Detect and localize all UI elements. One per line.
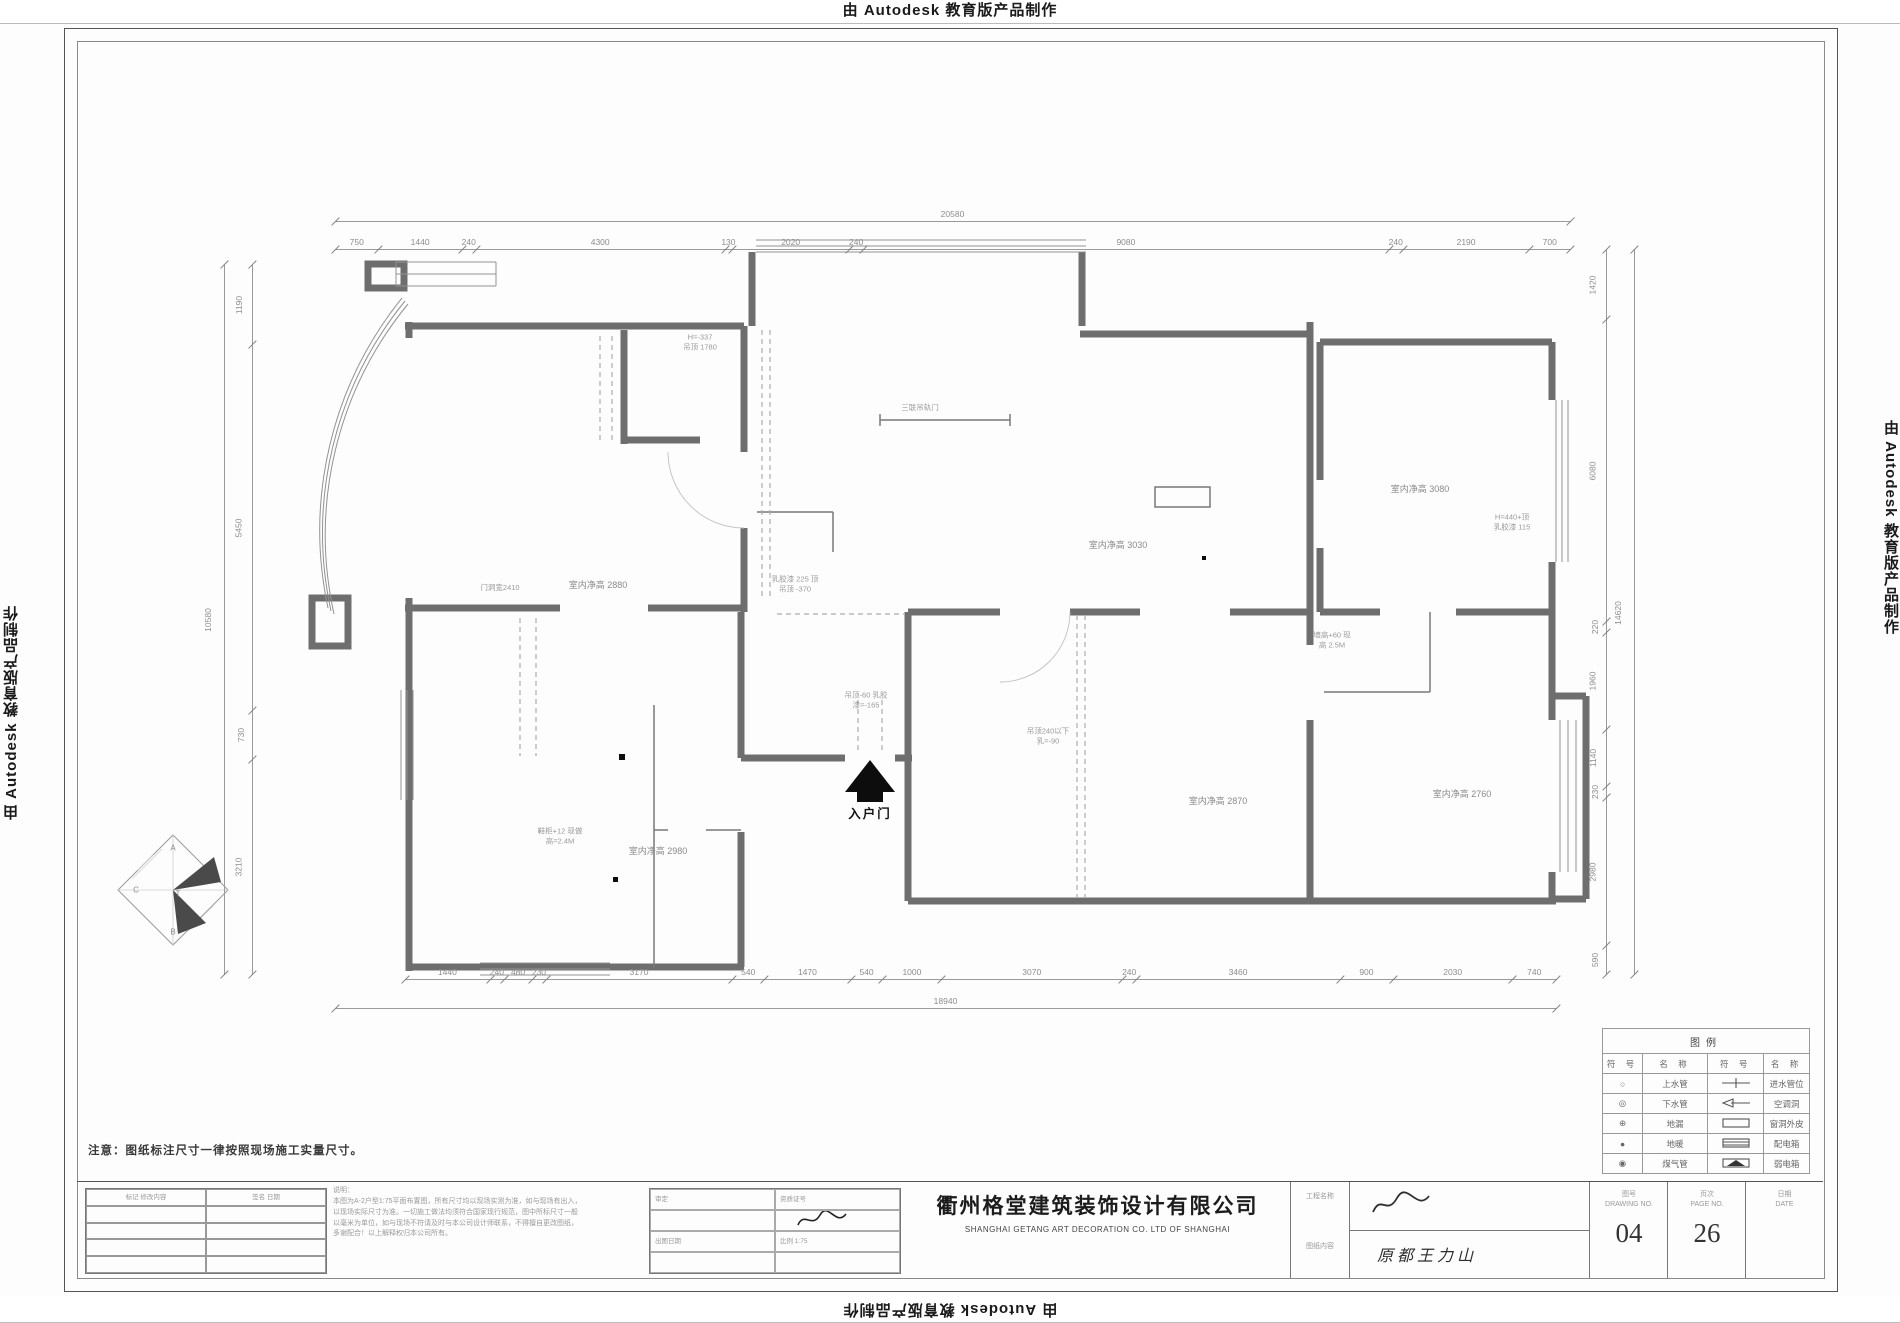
dwgno-value: 04	[1590, 1218, 1668, 1249]
room-label: 三联吊轨门	[901, 403, 939, 413]
notes-line: 以毫米为单位，如与现场不符请及时与本公司设计师联系，不得擅自更改图纸，	[333, 1219, 643, 1230]
divider-1	[1290, 1182, 1291, 1278]
revision-cell	[206, 1256, 326, 1273]
room-label-line: 吊顶240以下	[1027, 726, 1070, 736]
room-label-line: 门洞宽2410	[480, 583, 519, 593]
legend-symbol-1: ⊕	[1603, 1114, 1643, 1134]
project-handwriting	[1367, 1190, 1437, 1220]
legend-name-1: 上水管	[1643, 1074, 1708, 1094]
legend-header-row: 符 号名 称符 号名 称	[1603, 1054, 1810, 1074]
revision-cell	[206, 1206, 326, 1223]
legend-symbol-2-rect-icon	[1708, 1114, 1764, 1134]
legend-row: ○上水管进水管位	[1603, 1074, 1810, 1094]
signature-table: 审定 资质证号 出图日期 比例 1:75	[649, 1188, 901, 1274]
room-label-line: 高=2.4M	[538, 836, 583, 846]
revision-cell	[86, 1239, 206, 1256]
revision-table: 标记 修改内容签名 日期	[85, 1188, 327, 1274]
room-label: 室内净高 3030	[1089, 540, 1148, 552]
revision-cell: 标记 修改内容	[86, 1189, 206, 1206]
stamp-cell	[775, 1210, 900, 1231]
legend-name-2: 窗洞外皮	[1764, 1114, 1810, 1134]
legend-name-2: 弱电箱	[1764, 1154, 1810, 1174]
legend-header-cell: 符 号	[1603, 1054, 1643, 1074]
entry-door-label: 入户门	[848, 806, 892, 822]
notes-line: 多谢配合！以上解释权归本公司所有。	[333, 1229, 643, 1240]
room-label-line: 室内净高 3080	[1391, 484, 1450, 496]
room-label: 乳胶漆 225 顶吊顶 -370	[772, 574, 819, 594]
page-box-date: 日期 DATE	[1745, 1182, 1823, 1278]
room-label-line: 墙高+60 现	[1313, 630, 1350, 640]
legend-header-cell: 符 号	[1708, 1054, 1764, 1074]
sig-cell-3	[775, 1252, 900, 1273]
divider-3	[1349, 1230, 1589, 1231]
sig-cell-1	[650, 1210, 775, 1231]
legend-row: ◎下水管空调洞	[1603, 1094, 1810, 1114]
room-label-line: H=-337	[683, 332, 717, 342]
room-label-line: 吊顶-60 乳胶	[845, 690, 888, 700]
room-label: 吊顶-60 乳胶漆=-165	[845, 690, 888, 710]
revision-cell	[86, 1206, 206, 1223]
notes-line: 以现场实际尺寸为准。一切施工做法均须符合国家现行规范，图中所标尺寸一般	[333, 1208, 643, 1219]
notes-line: 本图为A-2户型1:75平面布置图，所有尺寸均以现场实测为准，如与现场有出入，	[333, 1197, 643, 1208]
room-label: 门洞宽2410	[480, 583, 519, 593]
legend-symbol-1: ○	[1603, 1074, 1643, 1094]
legend-name-1: 煤气管	[1643, 1154, 1708, 1174]
page-label: 页次	[1700, 1191, 1714, 1198]
logo-letter-a: A	[170, 844, 175, 853]
cert-label: 资质证号	[775, 1189, 900, 1210]
room-label: H=440+顶乳胶漆 115	[1494, 512, 1531, 532]
legend-title-row: 图例	[1603, 1029, 1810, 1054]
room-label-line: 室内净高 2870	[1189, 796, 1248, 808]
room-label-line: 乳=-90	[1027, 736, 1070, 746]
logo-letter-c: C	[133, 886, 139, 895]
date-box-label: 日期	[1778, 1191, 1792, 1198]
legend-name-1: 地漏	[1643, 1114, 1708, 1134]
revision-cell	[206, 1223, 326, 1240]
room-label-line: 室内净高 2980	[629, 846, 688, 858]
dwgno-sub: DRAWING NO.	[1605, 1201, 1653, 1208]
legend-row: ●地暖配电箱	[1603, 1134, 1810, 1154]
room-label-line: 室内净高 2880	[569, 580, 628, 592]
room-label-line: 吊顶 -370	[772, 584, 819, 594]
room-label-line: H=440+顶	[1494, 512, 1531, 522]
revision-cell: 签名 日期	[206, 1189, 326, 1206]
legend-name-1: 下水管	[1643, 1094, 1708, 1114]
notes-box: 说明： 本图为A-2户型1:75平面布置图，所有尺寸均以现场实测为准，如与现场有…	[333, 1186, 643, 1274]
room-label-line: 吊顶 1780	[683, 342, 717, 352]
room-label: 室内净高 2880	[569, 580, 628, 592]
company-block: 衢州格堂建筑装饰设计有限公司 SHANGHAI GETANG ART DECOR…	[905, 1190, 1290, 1234]
logo-letter-b: B	[170, 928, 175, 937]
project-label: 工程名称	[1292, 1192, 1348, 1202]
room-label-line: 室内净高 2760	[1433, 789, 1492, 801]
room-label: 室内净高 3080	[1391, 484, 1450, 496]
notes-title: 说明：	[333, 1187, 354, 1194]
sig-cell-2	[650, 1252, 775, 1273]
company-name-cn: 衢州格堂建筑装饰设计有限公司	[905, 1190, 1290, 1220]
legend-symbol-1: ◎	[1603, 1094, 1643, 1114]
legend-symbol-2-arrow-icon	[1708, 1094, 1764, 1114]
logo-letter-t: T	[176, 890, 181, 899]
company-name-en: SHANGHAI GETANG ART DECORATION CO. LTD O…	[905, 1225, 1290, 1234]
notes-lines: 本图为A-2户型1:75平面布置图，所有尺寸均以现场实测为准，如与现场有出入，以…	[333, 1197, 643, 1240]
room-label: 室内净高 2870	[1189, 796, 1248, 808]
sheet-handwriting: 原都王力山	[1377, 1242, 1477, 1266]
room-label: 室内净高 2980	[629, 846, 688, 858]
date-label: 出图日期	[650, 1231, 775, 1252]
legend-symbol-1: ●	[1603, 1134, 1643, 1154]
revision-cell	[206, 1239, 326, 1256]
room-label-line: 鞋柜+12 现做	[538, 826, 583, 836]
legend-row: ◉煤气管弱电箱	[1603, 1154, 1810, 1174]
revision-cell	[86, 1256, 206, 1273]
room-label: H=-337吊顶 1780	[683, 332, 717, 352]
room-label: 室内净高 2760	[1433, 789, 1492, 801]
legend-name-2: 空调洞	[1764, 1094, 1810, 1114]
scale-label: 比例 1:75	[775, 1231, 900, 1252]
legend-symbol-2-hatch-icon	[1708, 1134, 1764, 1154]
page-box-page: 页次 PAGE NO. 26	[1667, 1182, 1746, 1278]
room-label: 鞋柜+12 现做高=2.4M	[538, 826, 583, 846]
signature-stamp	[796, 1210, 856, 1231]
approve-label: 审定	[650, 1189, 775, 1210]
legend-table: 图例符 号名 称符 号名 称○上水管进水管位◎下水管空调洞⊕地漏窗洞外皮●地暖配…	[1602, 1028, 1810, 1174]
room-label-line: 三联吊轨门	[901, 403, 939, 413]
legend-title: 图例	[1603, 1029, 1810, 1054]
sheet-note: 注意：图纸标注尺寸一律按照现场施工实量尺寸。	[88, 1142, 363, 1158]
revision-cell	[86, 1223, 206, 1240]
title-block: 标记 修改内容签名 日期 说明： 本图为A-2户型1:75平面布置图，所有尺寸均…	[77, 1181, 1823, 1278]
legend-header-cell: 名 称	[1643, 1054, 1708, 1074]
room-label-line: 乳胶漆 225 顶	[772, 574, 819, 584]
legend-row: ⊕地漏窗洞外皮	[1603, 1114, 1810, 1134]
room-label-line: 室内净高 3030	[1089, 540, 1148, 552]
room-label-line: 乳胶漆 115	[1494, 522, 1531, 532]
dwgno-label: 图号	[1622, 1191, 1636, 1198]
legend-symbol-2-tri-icon	[1708, 1154, 1764, 1174]
legend-name-2: 配电箱	[1764, 1134, 1810, 1154]
legend-name-2: 进水管位	[1764, 1074, 1810, 1094]
page-value: 26	[1668, 1218, 1746, 1249]
legend-symbol-1: ◉	[1603, 1154, 1643, 1174]
room-label: 墙高+60 现高 2.5M	[1313, 630, 1350, 650]
page-sub: PAGE NO.	[1690, 1201, 1723, 1208]
date-box-sub: DATE	[1775, 1201, 1793, 1208]
room-label-line: 高 2.5M	[1313, 640, 1350, 650]
room-label: 吊顶240以下乳=-90	[1027, 726, 1070, 746]
legend-name-1: 地暖	[1643, 1134, 1708, 1154]
legend-header-cell: 名 称	[1764, 1054, 1810, 1074]
sheet-label: 图纸内容	[1292, 1242, 1348, 1252]
legend-symbol-2-tee-icon	[1708, 1074, 1764, 1094]
room-label-line: 漆=-165	[845, 700, 888, 710]
page-box-dwgno: 图号 DRAWING NO. 04	[1589, 1182, 1668, 1278]
